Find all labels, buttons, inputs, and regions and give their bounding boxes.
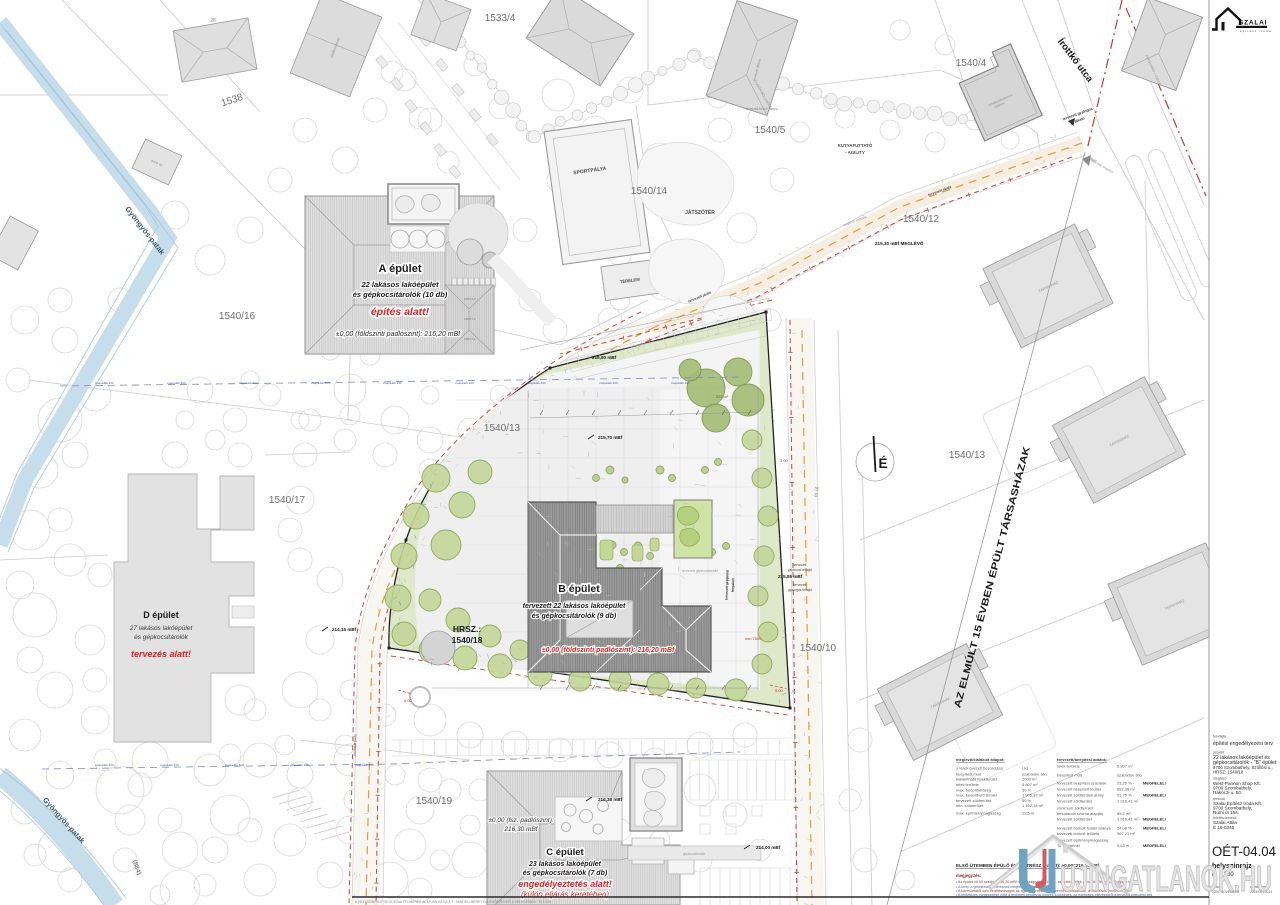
svg-text:tervezett beépítési százalék: tervezett beépítési százalék — [1057, 781, 1106, 786]
svg-text:1 162,18 m²: 1 162,18 m² — [1022, 803, 1044, 808]
svg-text:882,38 m²: 882,38 m² — [1117, 787, 1136, 792]
svg-text:tervezett burkolt felülete: tervezett burkolt felülete — [1057, 831, 1100, 836]
svg-text:gépkocsi lehajtó: gépkocsi lehajtó — [788, 568, 812, 572]
svg-text:és gépkocsitárolók (9 db): és gépkocsitárolók (9 db) — [532, 613, 617, 620]
svg-text:É 16-0245: É 16-0245 — [1213, 824, 1235, 830]
svg-text:KUTYAFUTTATÓ: KUTYAFUTTATÓ — [838, 143, 873, 148]
svg-text:12,5 m: 12,5 m — [1022, 810, 1035, 815]
svg-text:1540/4: 1540/4 — [956, 58, 987, 69]
svg-text:csapadék 400: csapadék 400 — [311, 381, 330, 385]
svg-text:csapadék 400: csapadék 400 — [355, 763, 374, 767]
svg-text:csapadék 400: csapadék 400 — [527, 381, 546, 385]
svg-text:216,90 mBf: 216,90 mBf — [592, 355, 617, 360]
svg-text:tervezett zöldterületi arány: tervezett zöldterületi arány — [1057, 793, 1104, 798]
svg-text:27 lakásos lakóépület: 27 lakásos lakóépület — [129, 625, 194, 632]
svg-text:szabadon álló: szabadon álló — [1022, 771, 1047, 776]
svg-text:csapadék 400: csapadék 400 — [225, 763, 244, 767]
svg-text:tervezett: tervezett — [793, 563, 806, 567]
svg-text:megjegyzés:: megjegyzés: — [956, 873, 981, 878]
svg-text:forgalom: forgalom — [731, 578, 736, 593]
svg-text:tervezett közvil. lámpa: tervezett közvil. lámpa — [746, 107, 778, 111]
svg-text:csapadék 400: csapadék 400 — [455, 381, 474, 385]
svg-text:Lk1 -: Lk1 - — [1022, 766, 1032, 771]
svg-text:és gépkocsitárolók (7 db): és gépkocsitárolók (7 db) — [523, 870, 608, 877]
svg-text:223 m²: 223 m² — [716, 394, 729, 399]
svg-text:1 905,32 m²: 1 905,32 m² — [1022, 793, 1044, 798]
svg-text:tervezett zöldterület: tervezett zöldterület — [956, 798, 992, 803]
svg-text:UJINGATLANOK.HU: UJINGATLANOK.HU — [1060, 858, 1272, 899]
svg-text:A épület: A épület — [379, 263, 422, 275]
svg-text:967,21 m²: 967,21 m² — [1117, 831, 1136, 836]
svg-text:1540/14: 1540/14 — [631, 186, 668, 197]
svg-text:5 807 m²: 5 807 m² — [1022, 782, 1038, 787]
svg-text:1540/5: 1540/5 — [755, 125, 786, 136]
svg-text:gépkocsibeálló: gépkocsibeálló — [683, 852, 706, 856]
svg-text:tervezett zöldterület: tervezett zöldterület — [1057, 798, 1093, 803]
svg-text:±0,00 (fsz. padlószint):: ±0,00 (fsz. padlószint): — [488, 817, 554, 824]
svg-text:tervezett: tervezett — [793, 583, 806, 587]
svg-text:csapadék 400: csapadék 400 — [95, 381, 114, 385]
svg-text:1540/18: 1540/18 — [452, 635, 483, 645]
svg-text:MEGFELEL!: MEGFELEL! — [1143, 826, 1166, 831]
svg-text:csapadék 400: csapadék 400 — [383, 381, 402, 385]
svg-text:1540/10: 1540/10 — [800, 643, 837, 654]
svg-text:28: 28 — [210, 18, 216, 24]
svg-text:MOST-2: MOST-2 — [464, 317, 475, 321]
svg-text:építési engedélyezési terv: építési engedélyezési terv — [1213, 741, 1273, 747]
svg-text:telek területe: telek területe — [1057, 763, 1081, 768]
svg-text:tervfajta: tervfajta — [1213, 735, 1226, 739]
svg-text:85,2 m²: 85,2 m² — [1117, 811, 1131, 816]
svg-text:1540/17: 1540/17 — [269, 495, 306, 506]
svg-text:1533/4: 1533/4 — [485, 13, 516, 24]
svg-text:5,00: 5,00 — [404, 698, 413, 703]
svg-text:m út: m út — [814, 486, 821, 498]
svg-text:216,30.mBf: 216,30.mBf — [503, 826, 538, 833]
svg-text:JÁTSZÓTÉR: JÁTSZÓTÉR — [685, 208, 715, 216]
svg-text:HRSZ: 1540/18: HRSZ: 1540/18 — [1213, 770, 1244, 775]
svg-text:min 7500: min 7500 — [745, 636, 762, 641]
svg-text:beépítési mód: beépítési mód — [1057, 772, 1082, 777]
svg-text:csapadék 400: csapadék 400 — [160, 763, 179, 767]
svg-text:5 807 m²: 5 807 m² — [1117, 763, 1133, 768]
svg-text:SZALAI: SZALAI — [1239, 20, 1267, 27]
svg-text:±0,00 (földszinti padlószint):: ±0,00 (földszinti padlószint): 216,20 mB… — [542, 647, 675, 654]
svg-text:MOST-1: MOST-1 — [464, 337, 475, 341]
svg-text:MEGFELEL!: MEGFELEL! — [1143, 793, 1166, 798]
svg-text:csapadék 400: csapadék 400 — [671, 381, 690, 385]
svg-text:50 %: 50 % — [1022, 798, 1032, 803]
svg-text:csapadék 400: csapadék 400 — [239, 381, 258, 385]
svg-text:3,00: 3,00 — [780, 458, 789, 463]
svg-text:A HELYSZÍNRAJZ GEODÉZIAI FELMÉ: A HELYSZÍNRAJZ GEODÉZIAI FELMÉRÉS ALAPJÁ… — [355, 899, 551, 904]
svg-text:tervezett 22 lakásos lakóépüle: tervezett 22 lakásos lakóépület — [523, 603, 626, 610]
svg-text:és gépkocsitárolók: és gépkocsitárolók — [134, 634, 189, 641]
svg-text:betudandó szórna alapján: betudandó szórna alapján — [1057, 811, 1103, 816]
svg-text:B épület: B épület — [558, 583, 600, 595]
svg-text:max. építménymagasság: max. építménymagasság — [956, 810, 1001, 815]
svg-text:OÉT-04.04: OÉT-04.04 — [1212, 844, 1276, 859]
svg-text:MEGFELEL!: MEGFELEL! — [1143, 843, 1166, 848]
svg-text:51,75 % -: 51,75 % - — [1117, 793, 1135, 798]
svg-text:szabadon álló: szabadon álló — [1117, 772, 1142, 777]
svg-text:építész iroda: építész iroda — [1240, 29, 1272, 33]
svg-text:MEGFELEL!: MEGFELEL! — [1143, 817, 1166, 822]
svg-text:min. zöldterület: min. zöldterület — [956, 803, 984, 808]
svg-text:tervezett zöldterület: tervezett zöldterület — [1057, 817, 1093, 822]
svg-text:22 lakásos lakóépület: 22 lakásos lakóépület — [360, 280, 439, 289]
svg-text:MEGFELEL!: MEGFELEL! — [1143, 781, 1166, 786]
svg-text:C épület: C épület — [546, 847, 584, 858]
svg-text:csapadék 400: csapadék 400 — [290, 763, 309, 767]
svg-text:csapadék 400: csapadék 400 — [599, 381, 618, 385]
svg-text:telek területe: telek területe — [956, 782, 980, 787]
svg-text:1540/12: 1540/12 — [903, 214, 940, 225]
svg-text:215,30 mBf MEGLÉVŐ: 215,30 mBf MEGLÉVŐ — [875, 239, 924, 246]
svg-text:1 916,41 m² -: 1 916,41 m² - — [1117, 817, 1141, 822]
svg-text:Rumi út 154.: Rumi út 154. — [1213, 810, 1239, 815]
svg-text:max. beépíthető terület: max. beépíthető terület — [956, 793, 998, 798]
svg-text:216,38 mBf: 216,38 mBf — [598, 797, 623, 802]
svg-text:tervezett/beépítési adatok:: tervezett/beépítési adatok: — [1057, 757, 1107, 762]
svg-text:gyalogos lehajtó: gyalogos lehajtó — [788, 588, 813, 592]
svg-text:1540/16: 1540/16 — [219, 311, 256, 322]
svg-text:5,00: 5,00 — [775, 688, 784, 693]
svg-text:a terek övezeti besorolása: a terek övezeti besorolása — [956, 766, 1003, 771]
svg-text:- AGILITY: - AGILITY — [845, 150, 865, 155]
svg-text:MOST-3: MOST-3 — [464, 297, 475, 301]
svg-text:építés alatt!: építés alatt! — [371, 306, 430, 318]
svg-text:tervezett építménymagasság: tervezett építménymagasság — [1057, 838, 1108, 843]
svg-text:tervezett gépkocsibeálló: tervezett gépkocsibeálló — [682, 569, 718, 573]
svg-text:9,63 m -: 9,63 m - — [1117, 843, 1132, 848]
svg-text:csapadék 400: csapadék 400 — [95, 763, 114, 767]
svg-text:HRSZ.:: HRSZ.: — [453, 624, 482, 634]
svg-text:meglévő/kialakult állapot:: meglévő/kialakult állapot: — [956, 757, 1005, 762]
svg-text:1 916,41 m²: 1 916,41 m² — [1117, 798, 1139, 803]
svg-text:215,85 mBf: 215,85 mBf — [778, 574, 803, 579]
svg-text:1540/13: 1540/13 — [484, 423, 521, 434]
svg-text:tervezett beépített terület: tervezett beépített terület — [1057, 787, 1102, 792]
svg-text:engedélyeztetés alatt!: engedélyeztetés alatt! — [518, 879, 612, 889]
svg-text:É: É — [878, 456, 887, 471]
svg-text:1540/13: 1540/13 — [949, 450, 986, 461]
svg-text:tervezés alatt!: tervezés alatt! — [131, 649, 191, 659]
svg-text:D épület: D épület — [143, 610, 179, 620]
svg-text:214,15 mBf: 214,15 mBf — [332, 627, 357, 632]
svg-text:23 lakásos lakóépület: 23 lakásos lakóépület — [528, 861, 602, 868]
svg-text:minimum zöldterület: minimum zöldterület — [1057, 806, 1094, 811]
svg-text:Rákóczi u. 50.: Rákóczi u. 50. — [1213, 790, 1242, 795]
svg-text:1540/19: 1540/19 — [416, 796, 453, 807]
svg-text:23,26 % -: 23,26 % - — [1117, 781, 1135, 786]
svg-text:tervezett járda: tervezett járda — [353, 734, 358, 756]
svg-text:beépítési mód: beépítési mód — [956, 771, 981, 776]
svg-text:±0,00 (földszinti padlószint):: ±0,00 (földszinti padlószint): 216,20 mB… — [336, 331, 462, 338]
svg-text:és gépkocsitárolók (10 db): és gépkocsitárolók (10 db) — [353, 290, 448, 299]
svg-text:215,70 mBf: 215,70 mBf — [598, 435, 623, 440]
svg-text:214,00 mBf: 214,00 mBf — [756, 845, 781, 850]
svg-text:csapadék 400: csapadék 400 — [167, 381, 186, 385]
